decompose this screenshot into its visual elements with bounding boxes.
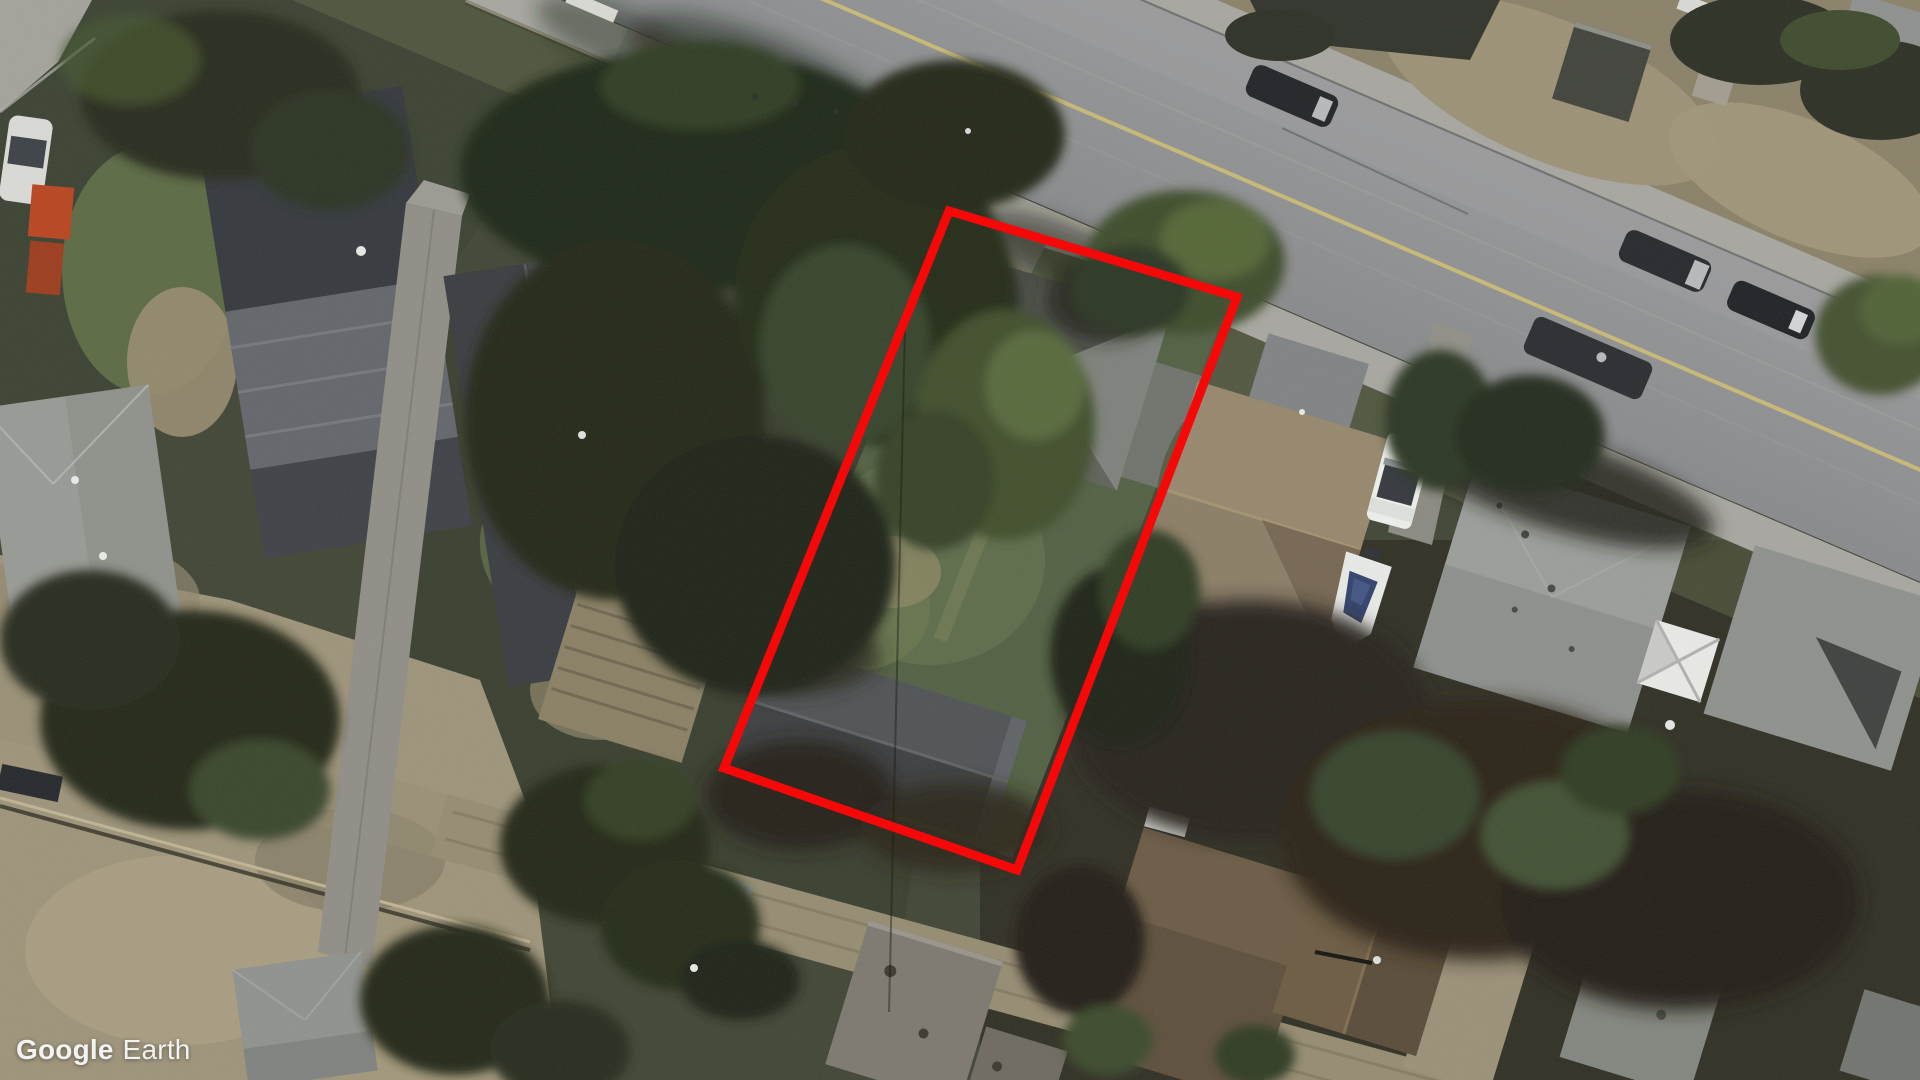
watermark-brand: Google bbox=[16, 1034, 114, 1065]
google-earth-watermark: GoogleEarth bbox=[16, 1034, 191, 1066]
satellite-map-canvas[interactable]: GoogleEarth bbox=[0, 0, 1920, 1080]
image-grain-overlay bbox=[0, 0, 1920, 1080]
aerial-imagery bbox=[0, 0, 1920, 1080]
watermark-product: Earth bbox=[123, 1034, 191, 1065]
